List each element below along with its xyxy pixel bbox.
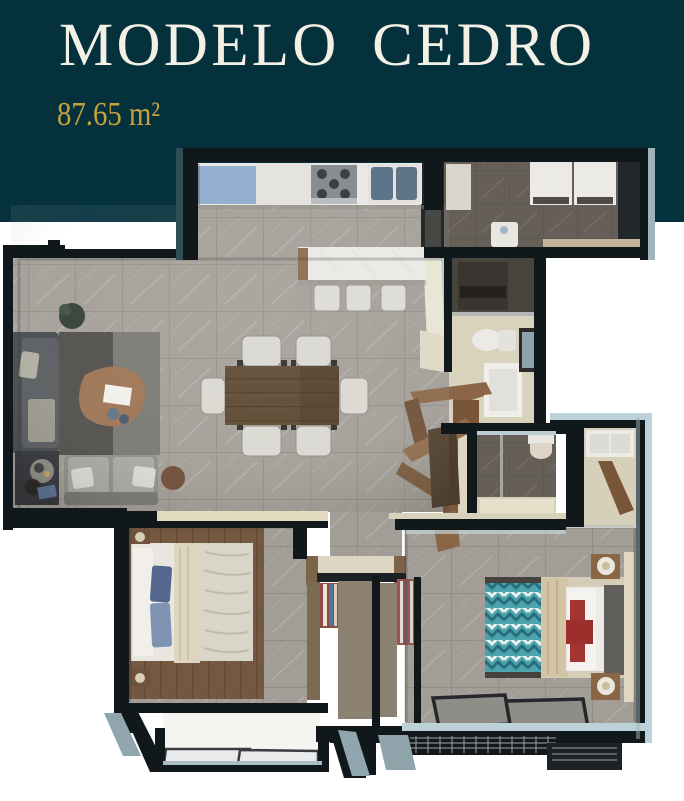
svg-text:87.65 m²: 87.65 m² bbox=[57, 96, 160, 133]
svg-text:MODELO CEDRO: MODELO CEDRO bbox=[59, 12, 595, 79]
